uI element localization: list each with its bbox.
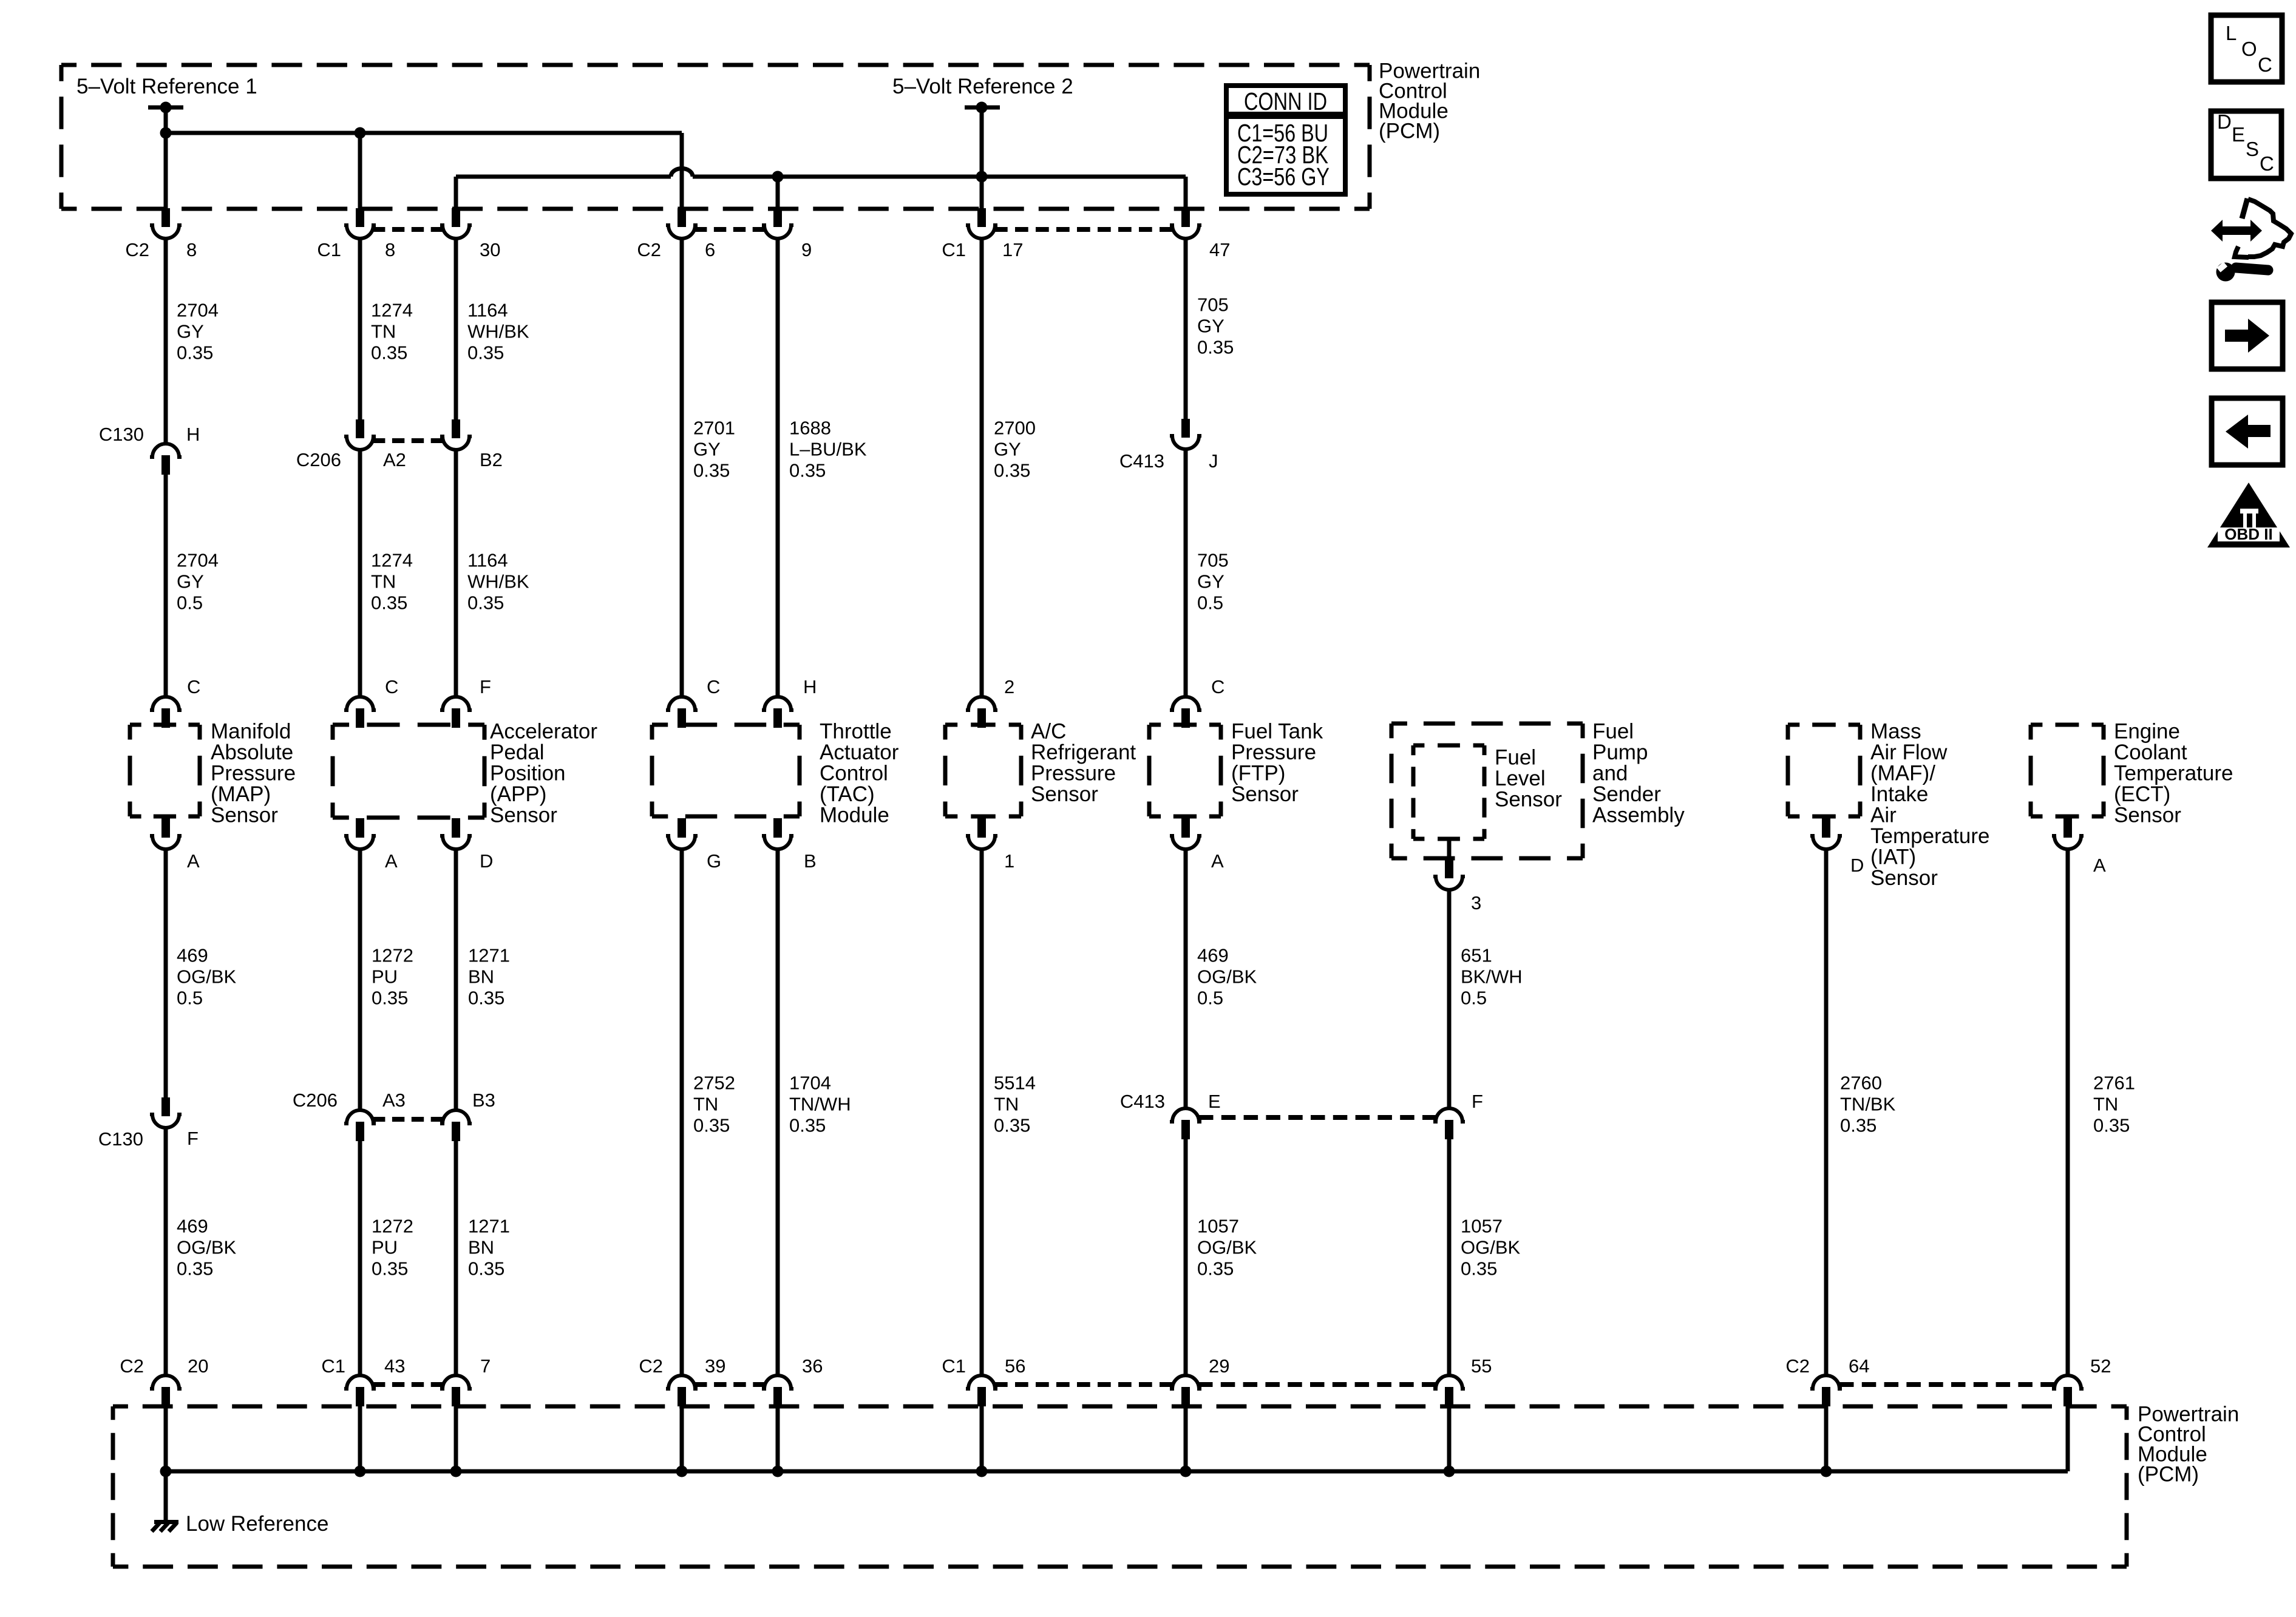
svg-text:1688: 1688: [789, 418, 831, 439]
svg-text:0.35: 0.35: [467, 342, 504, 364]
svg-text:OG/BK: OG/BK: [177, 966, 237, 988]
svg-text:(APP): (APP): [490, 782, 546, 806]
svg-text:8: 8: [385, 239, 395, 260]
svg-text:1164: 1164: [467, 300, 508, 321]
svg-text:Pressure: Pressure: [1231, 741, 1316, 764]
svg-text:Pressure: Pressure: [211, 762, 296, 785]
svg-text:A/C: A/C: [1031, 720, 1066, 744]
svg-text:H: H: [803, 676, 817, 697]
svg-text:Pump: Pump: [1592, 741, 1648, 764]
svg-text:TN/WH: TN/WH: [789, 1094, 851, 1115]
svg-text:29: 29: [1209, 1355, 1229, 1377]
svg-text:A2: A2: [383, 449, 406, 470]
svg-text:C130: C130: [99, 424, 144, 445]
svg-text:Sensor: Sensor: [1495, 788, 1562, 812]
svg-text:OG/BK: OG/BK: [177, 1237, 237, 1258]
svg-text:C413: C413: [1119, 450, 1164, 472]
svg-text:C2: C2: [120, 1355, 144, 1377]
svg-text:17: 17: [1002, 239, 1023, 260]
svg-text:TN: TN: [994, 1094, 1019, 1115]
svg-text:30: 30: [480, 239, 500, 260]
svg-text:8: 8: [186, 239, 197, 260]
svg-text:C206: C206: [296, 449, 341, 470]
svg-text:A: A: [385, 850, 398, 872]
svg-text:E: E: [1208, 1091, 1221, 1112]
svg-text:0.35: 0.35: [2093, 1115, 2130, 1136]
svg-text:C2: C2: [637, 239, 661, 260]
svg-text:Sensor: Sensor: [1231, 782, 1299, 806]
svg-text:47: 47: [1209, 239, 1230, 260]
svg-text:C2: C2: [639, 1355, 663, 1377]
svg-text:A: A: [1211, 850, 1224, 872]
svg-text:1: 1: [1004, 850, 1014, 872]
svg-text:0.35: 0.35: [372, 988, 408, 1009]
svg-text:A3: A3: [382, 1090, 406, 1111]
svg-text:Temperature: Temperature: [2114, 762, 2233, 785]
svg-text:G: G: [707, 850, 721, 872]
svg-text:C130: C130: [98, 1128, 143, 1150]
svg-text:A: A: [187, 850, 200, 872]
svg-text:Mass: Mass: [1870, 720, 1921, 744]
svg-text:5514: 5514: [994, 1073, 1036, 1094]
svg-text:1272: 1272: [372, 1216, 413, 1237]
svg-text:7: 7: [480, 1355, 491, 1377]
svg-text:Accelerator: Accelerator: [490, 720, 597, 744]
svg-text:WH/BK: WH/BK: [467, 571, 529, 592]
svg-text:Module: Module: [820, 804, 889, 827]
svg-text:469: 469: [177, 945, 208, 966]
svg-text:39: 39: [705, 1355, 725, 1377]
svg-text:Refrigerant: Refrigerant: [1031, 741, 1136, 764]
svg-text:B2: B2: [480, 449, 503, 470]
svg-text:Engine: Engine: [2114, 720, 2180, 744]
svg-text:D: D: [2217, 110, 2232, 133]
svg-text:0.35: 0.35: [789, 460, 826, 481]
svg-text:GY: GY: [693, 439, 721, 460]
svg-text:2752: 2752: [693, 1073, 735, 1094]
svg-text:Absolute: Absolute: [211, 741, 293, 764]
svg-text:(MAF)/: (MAF)/: [1870, 762, 1935, 785]
svg-text:5–Volt Reference 2: 5–Volt Reference 2: [892, 75, 1073, 98]
svg-text:1704: 1704: [789, 1073, 831, 1094]
svg-text:OBD II: OBD II: [2224, 525, 2272, 543]
svg-text:Position: Position: [490, 762, 566, 785]
svg-text:(ECT): (ECT): [2114, 782, 2170, 806]
svg-text:Manifold: Manifold: [211, 720, 291, 744]
svg-text:F: F: [1472, 1091, 1483, 1112]
svg-text:Assembly: Assembly: [1592, 804, 1685, 827]
svg-text:D: D: [480, 850, 493, 872]
svg-text:Pedal: Pedal: [490, 741, 545, 764]
svg-text:Intake: Intake: [1870, 782, 1928, 806]
svg-text:(FTP): (FTP): [1231, 762, 1285, 785]
svg-text:GY: GY: [1197, 571, 1224, 592]
svg-text:C: C: [187, 676, 200, 697]
svg-text:2700: 2700: [994, 418, 1036, 439]
svg-text:0.5: 0.5: [177, 592, 203, 614]
svg-text:O: O: [2241, 38, 2257, 60]
svg-text:469: 469: [177, 1216, 208, 1237]
svg-text:5–Volt Reference 1: 5–Volt Reference 1: [76, 75, 257, 98]
svg-text:Sensor: Sensor: [1870, 866, 1938, 890]
svg-text:Sensor: Sensor: [1031, 782, 1098, 806]
svg-text:OG/BK: OG/BK: [1461, 1237, 1521, 1258]
svg-text:F: F: [480, 676, 491, 697]
svg-text:Level: Level: [1495, 767, 1546, 790]
svg-text:(IAT): (IAT): [1870, 846, 1916, 869]
svg-text:(MAP): (MAP): [211, 782, 271, 806]
svg-text:B3: B3: [472, 1090, 495, 1111]
svg-text:C1: C1: [942, 1355, 966, 1377]
svg-text:Sensor: Sensor: [2114, 804, 2181, 827]
svg-text:1271: 1271: [468, 945, 510, 966]
svg-text:0.35: 0.35: [372, 1258, 408, 1280]
svg-text:C1: C1: [321, 1355, 345, 1377]
svg-text:Throttle: Throttle: [820, 720, 892, 744]
svg-text:C3=56 GY: C3=56 GY: [1237, 163, 1330, 191]
svg-text:705: 705: [1197, 550, 1229, 571]
svg-text:55: 55: [1471, 1355, 1492, 1377]
svg-text:C2: C2: [1785, 1355, 1810, 1377]
svg-text:469: 469: [1197, 945, 1229, 966]
svg-text:BN: BN: [468, 1237, 494, 1258]
svg-text:Air: Air: [1870, 804, 1897, 827]
svg-text:651: 651: [1461, 945, 1492, 966]
svg-text:2701: 2701: [693, 418, 735, 439]
svg-text:1271: 1271: [468, 1216, 510, 1237]
svg-text:0.35: 0.35: [371, 342, 407, 364]
svg-text:C413: C413: [1120, 1091, 1165, 1112]
svg-text:Actuator: Actuator: [820, 741, 899, 764]
svg-text:(TAC): (TAC): [820, 782, 875, 806]
svg-text:Sensor: Sensor: [490, 804, 557, 827]
svg-text:BK/WH: BK/WH: [1461, 966, 1523, 988]
svg-text:2: 2: [1004, 676, 1014, 697]
svg-text:0.5: 0.5: [1461, 988, 1487, 1009]
svg-text:0.35: 0.35: [789, 1115, 826, 1136]
svg-text:3: 3: [1471, 892, 1481, 914]
svg-text:0.35: 0.35: [1461, 1258, 1497, 1280]
svg-text:0.35: 0.35: [1840, 1115, 1877, 1136]
svg-text:Temperature: Temperature: [1870, 824, 1989, 848]
svg-text:0.35: 0.35: [1197, 337, 1234, 358]
svg-text:TN: TN: [371, 571, 396, 592]
svg-text:2760: 2760: [1840, 1073, 1882, 1094]
svg-text:C: C: [707, 676, 720, 697]
svg-text:E: E: [2232, 123, 2245, 146]
svg-text:0.5: 0.5: [177, 988, 203, 1009]
svg-text:36: 36: [802, 1355, 823, 1377]
svg-text:Air Flow: Air Flow: [1870, 741, 1948, 764]
svg-text:20: 20: [188, 1355, 208, 1377]
svg-text:0.35: 0.35: [1197, 1258, 1234, 1280]
svg-text:6: 6: [705, 239, 715, 260]
svg-text:CONN ID: CONN ID: [1244, 87, 1327, 115]
svg-text:0.35: 0.35: [693, 460, 730, 481]
svg-text:2704: 2704: [177, 550, 219, 571]
svg-text:F: F: [187, 1128, 199, 1149]
svg-text:Fuel: Fuel: [1495, 746, 1536, 770]
svg-text:1274: 1274: [371, 300, 413, 321]
svg-text:C: C: [385, 676, 398, 697]
svg-text:0.35: 0.35: [468, 1258, 504, 1280]
svg-text:L: L: [2226, 22, 2237, 44]
svg-text:(PCM): (PCM): [2138, 1463, 2199, 1486]
svg-text:0.5: 0.5: [1197, 988, 1223, 1009]
svg-text:1272: 1272: [372, 945, 413, 966]
svg-text:TN: TN: [371, 321, 396, 342]
svg-text:GY: GY: [177, 571, 204, 592]
svg-text:0.35: 0.35: [371, 592, 407, 614]
svg-text:C: C: [2258, 53, 2272, 76]
svg-text:Sender: Sender: [1592, 782, 1661, 806]
svg-text:BN: BN: [468, 966, 494, 988]
svg-text:GY: GY: [1197, 316, 1224, 337]
svg-text:56: 56: [1005, 1355, 1025, 1377]
svg-text:TN: TN: [693, 1094, 718, 1115]
svg-text:1274: 1274: [371, 550, 413, 571]
svg-text:43: 43: [384, 1355, 405, 1377]
svg-text:0.35: 0.35: [994, 460, 1030, 481]
svg-text:GY: GY: [177, 321, 204, 342]
svg-text:Coolant: Coolant: [2114, 741, 2187, 764]
svg-text:TN/BK: TN/BK: [1840, 1094, 1896, 1115]
svg-text:S: S: [2246, 138, 2259, 160]
svg-text:1057: 1057: [1461, 1216, 1503, 1237]
svg-text:0.35: 0.35: [468, 988, 504, 1009]
svg-text:0.35: 0.35: [994, 1115, 1030, 1136]
svg-text:0.35: 0.35: [693, 1115, 730, 1136]
svg-text:1057: 1057: [1197, 1216, 1239, 1237]
svg-text:and: and: [1592, 762, 1628, 785]
svg-text:C: C: [1211, 676, 1224, 697]
svg-text:D: D: [1850, 855, 1864, 876]
svg-text:L–BU/BK: L–BU/BK: [789, 439, 867, 460]
svg-text:705: 705: [1197, 294, 1229, 316]
svg-text:C2: C2: [125, 239, 149, 260]
svg-text:0.5: 0.5: [1197, 592, 1223, 614]
svg-text:Control: Control: [820, 762, 888, 785]
svg-text:2761: 2761: [2093, 1073, 2135, 1094]
svg-text:0.35: 0.35: [177, 1258, 213, 1280]
svg-text:OG/BK: OG/BK: [1197, 1237, 1257, 1258]
svg-text:J: J: [1209, 450, 1218, 472]
svg-text:2704: 2704: [177, 300, 219, 321]
svg-text:Fuel Tank: Fuel Tank: [1231, 720, 1323, 744]
svg-text:C: C: [2260, 152, 2274, 175]
svg-text:A: A: [2093, 855, 2106, 876]
svg-text:PU: PU: [372, 1237, 398, 1258]
svg-text:C1: C1: [942, 239, 966, 260]
svg-text:TN: TN: [2093, 1094, 2118, 1115]
svg-text:1164: 1164: [467, 550, 508, 571]
svg-text:0.35: 0.35: [177, 342, 213, 364]
svg-text:Low Reference: Low Reference: [186, 1512, 328, 1536]
svg-text:B: B: [804, 850, 817, 872]
svg-text:WH/BK: WH/BK: [467, 321, 529, 342]
svg-text:Fuel: Fuel: [1592, 720, 1634, 744]
svg-text:Sensor: Sensor: [211, 804, 278, 827]
svg-text:0.35: 0.35: [467, 592, 504, 614]
svg-text:C1: C1: [317, 239, 341, 260]
svg-text:PU: PU: [372, 966, 398, 988]
svg-text:Pressure: Pressure: [1031, 762, 1116, 785]
svg-text:64: 64: [1849, 1355, 1869, 1377]
svg-text:OG/BK: OG/BK: [1197, 966, 1257, 988]
svg-text:H: H: [186, 424, 200, 445]
svg-text:(PCM): (PCM): [1379, 120, 1440, 143]
svg-text:9: 9: [801, 239, 812, 260]
svg-text:52: 52: [2090, 1355, 2111, 1377]
svg-text:GY: GY: [994, 439, 1021, 460]
svg-text:C206: C206: [293, 1090, 338, 1111]
